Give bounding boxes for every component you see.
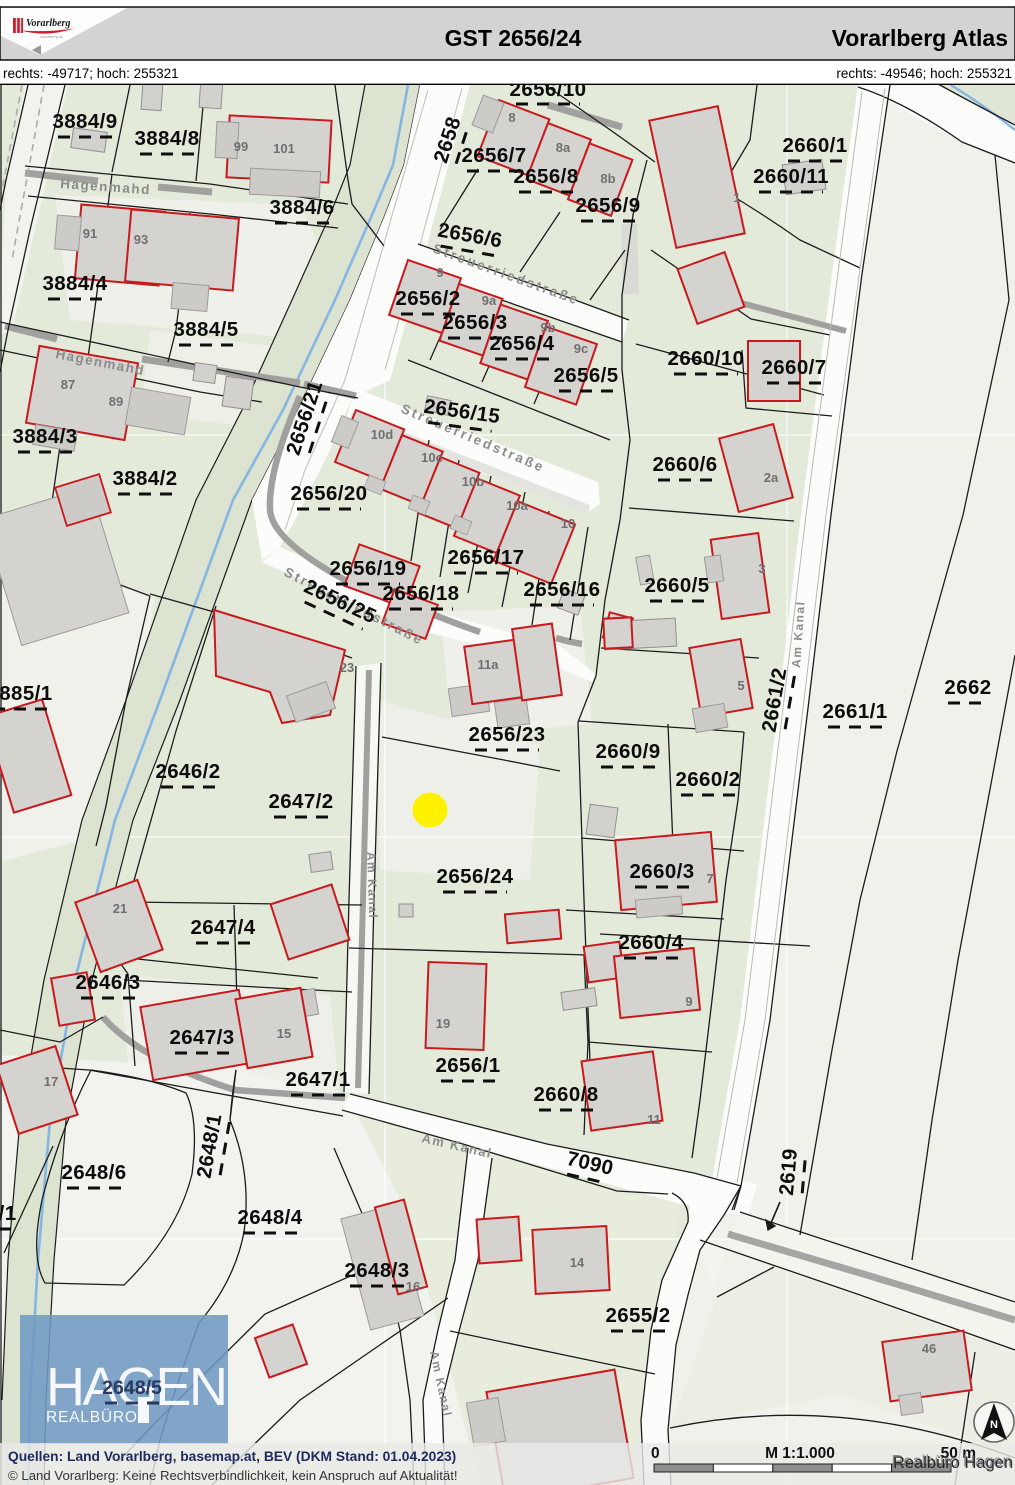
svg-text:3884/2: 3884/2: [112, 467, 177, 490]
svg-text:2660/1: 2660/1: [782, 134, 847, 157]
svg-text:19: 19: [436, 1016, 450, 1031]
svg-text:2656/16: 2656/16: [524, 578, 601, 601]
svg-text:rechts: -49717; hoch: 255321: rechts: -49717; hoch: 255321: [3, 66, 179, 81]
svg-text:3884/4: 3884/4: [42, 272, 107, 295]
svg-text:2661/1: 2661/1: [822, 700, 887, 723]
svg-text:9c: 9c: [574, 341, 588, 356]
svg-text:2660/5: 2660/5: [644, 574, 709, 597]
svg-text:2648/3: 2648/3: [344, 1259, 409, 1282]
svg-text:rechts: -49546; hoch: 255321: rechts: -49546; hoch: 255321: [836, 66, 1012, 81]
svg-text:2656/3: 2656/3: [442, 311, 507, 334]
svg-text:8a: 8a: [556, 140, 571, 155]
svg-text:2656/8: 2656/8: [513, 165, 578, 188]
svg-text:2646/3: 2646/3: [75, 971, 140, 994]
svg-text:2649/1: 2649/1: [0, 1202, 17, 1225]
svg-text:2656/23: 2656/23: [469, 723, 546, 746]
svg-text:© Land Vorarlberg: Keine Recht: © Land Vorarlberg: Keine Rechtsverbindli…: [8, 1468, 458, 1483]
svg-text:17: 17: [44, 1074, 58, 1089]
svg-text:3885/1: 3885/1: [0, 682, 53, 705]
svg-text:2656/17: 2656/17: [448, 546, 525, 569]
svg-text:2647/1: 2647/1: [285, 1068, 350, 1091]
svg-text:7: 7: [706, 871, 713, 886]
svg-text:2646/2: 2646/2: [155, 760, 220, 783]
svg-text:2656/18: 2656/18: [383, 582, 460, 605]
svg-text:N: N: [990, 1419, 998, 1431]
svg-text:2619: 2619: [775, 1147, 802, 1196]
svg-text:8: 8: [508, 110, 515, 125]
svg-text:2660/7: 2660/7: [761, 356, 826, 379]
svg-text:2a: 2a: [764, 470, 779, 485]
svg-text:10d: 10d: [371, 427, 393, 442]
svg-text:10b: 10b: [462, 474, 484, 489]
svg-text:10a: 10a: [506, 498, 528, 513]
svg-text:vorarlberg.at: vorarlberg.at: [40, 34, 63, 39]
svg-text:2662: 2662: [944, 676, 991, 699]
svg-text:3884/5: 3884/5: [173, 318, 238, 341]
svg-text:3: 3: [758, 561, 765, 576]
svg-text:15: 15: [277, 1026, 291, 1041]
svg-text:11: 11: [647, 1112, 661, 1127]
svg-text:2656/5: 2656/5: [553, 364, 618, 387]
svg-text:10: 10: [561, 516, 575, 531]
svg-text:1: 1: [733, 190, 740, 205]
svg-text:5: 5: [737, 678, 744, 693]
svg-text:11a: 11a: [478, 657, 500, 672]
svg-text:0: 0: [651, 1445, 660, 1462]
svg-text:2648/6: 2648/6: [61, 1161, 126, 1184]
svg-text:2656/1: 2656/1: [435, 1054, 500, 1077]
svg-text:2648/5: 2648/5: [102, 1377, 162, 1399]
svg-text:9: 9: [685, 994, 692, 1009]
svg-text:9a: 9a: [482, 293, 497, 308]
svg-text:2656/20: 2656/20: [291, 482, 368, 505]
svg-text:2656/2: 2656/2: [395, 287, 460, 310]
svg-text:10c: 10c: [421, 450, 443, 465]
svg-text:87: 87: [61, 377, 75, 392]
svg-text:2660/8: 2660/8: [533, 1083, 598, 1106]
svg-text:14: 14: [570, 1255, 585, 1270]
svg-text:2648/4: 2648/4: [237, 1206, 302, 1229]
svg-text:2656/24: 2656/24: [437, 865, 514, 888]
svg-text:Vorarlberg: Vorarlberg: [26, 18, 70, 29]
svg-text:2660/6: 2660/6: [652, 453, 717, 476]
svg-text:Vorarlberg Atlas: Vorarlberg Atlas: [832, 25, 1008, 51]
svg-text:2656/7: 2656/7: [461, 144, 526, 167]
svg-text:89: 89: [109, 394, 123, 409]
svg-text:3884/9: 3884/9: [52, 110, 117, 133]
svg-text:9: 9: [436, 265, 443, 280]
svg-text:M 1:1.000: M 1:1.000: [765, 1445, 835, 1462]
svg-text:2660/11: 2660/11: [753, 165, 829, 188]
svg-text:91: 91: [83, 226, 97, 241]
svg-text:2660/2: 2660/2: [675, 768, 740, 791]
svg-text:REALBÜRO: REALBÜRO: [46, 1408, 138, 1426]
svg-text:2660/9: 2660/9: [595, 740, 660, 763]
svg-text:3884/3: 3884/3: [12, 425, 77, 448]
svg-text:93: 93: [134, 232, 148, 247]
svg-text:Quellen: Land Vorarlberg, base: Quellen: Land Vorarlberg, basemap.at, BE…: [8, 1449, 456, 1464]
svg-text:2656/4: 2656/4: [489, 332, 554, 355]
svg-text:101: 101: [273, 141, 295, 156]
svg-text:Am Kanal: Am Kanal: [364, 852, 380, 920]
svg-text:8b: 8b: [600, 171, 615, 186]
svg-text:2656/19: 2656/19: [330, 557, 407, 580]
svg-text:2647/3: 2647/3: [169, 1026, 234, 1049]
svg-text:Realbüro Hagen: Realbüro Hagen: [893, 1454, 1013, 1472]
svg-text:2660/3: 2660/3: [629, 860, 694, 883]
svg-text:2660/4: 2660/4: [618, 931, 683, 954]
svg-text:3884/8: 3884/8: [134, 127, 199, 150]
svg-text:3884/6: 3884/6: [269, 196, 334, 219]
svg-text:2647/2: 2647/2: [268, 790, 333, 813]
svg-text:21: 21: [113, 901, 127, 916]
svg-text:23: 23: [340, 660, 354, 675]
svg-text:2660/10: 2660/10: [668, 347, 745, 370]
svg-text:GST 2656/24: GST 2656/24: [445, 25, 582, 51]
svg-text:99: 99: [234, 139, 248, 154]
svg-text:2656/9: 2656/9: [575, 194, 640, 217]
svg-text:2647/4: 2647/4: [190, 916, 255, 939]
